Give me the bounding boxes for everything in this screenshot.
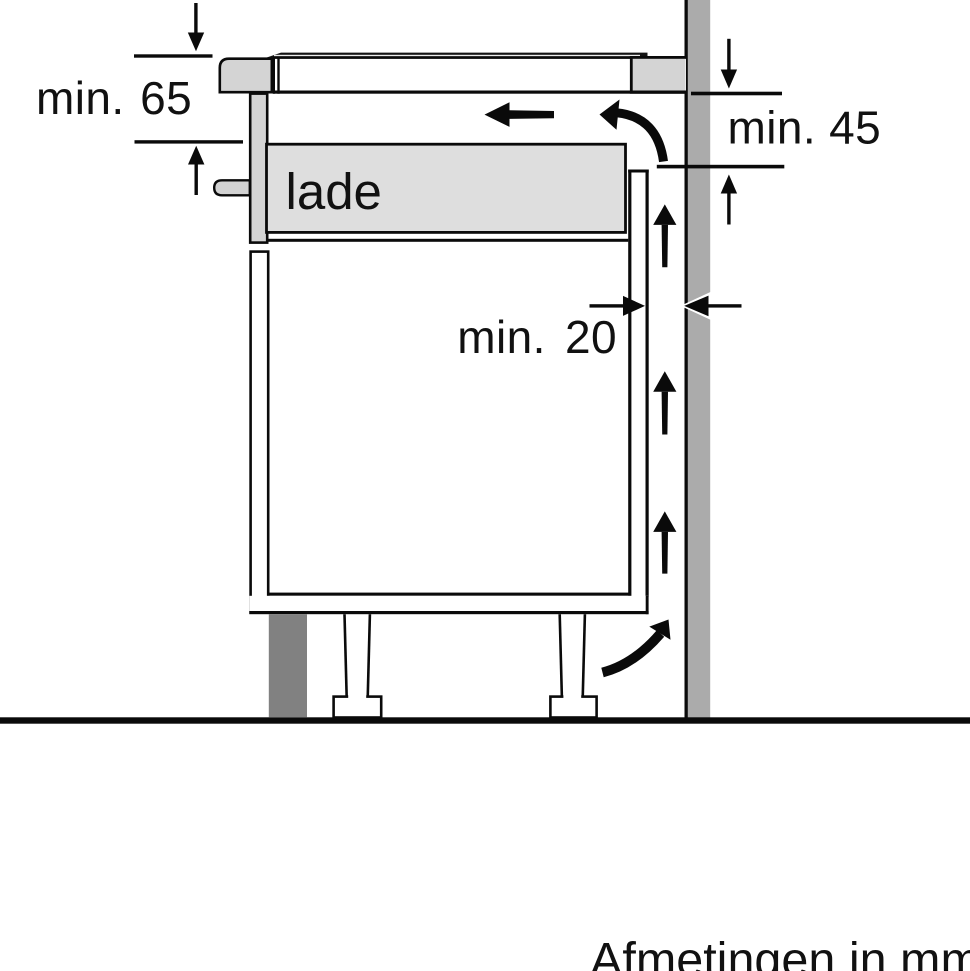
svg-text:min. 65: min. 65 [36,72,192,124]
svg-text:Afmetingen in mm: Afmetingen in mm [590,933,970,971]
svg-text:min. 45: min. 45 [728,101,882,153]
svg-text:min. 20: min. 20 [457,311,617,363]
svg-text:lade: lade [286,163,382,220]
